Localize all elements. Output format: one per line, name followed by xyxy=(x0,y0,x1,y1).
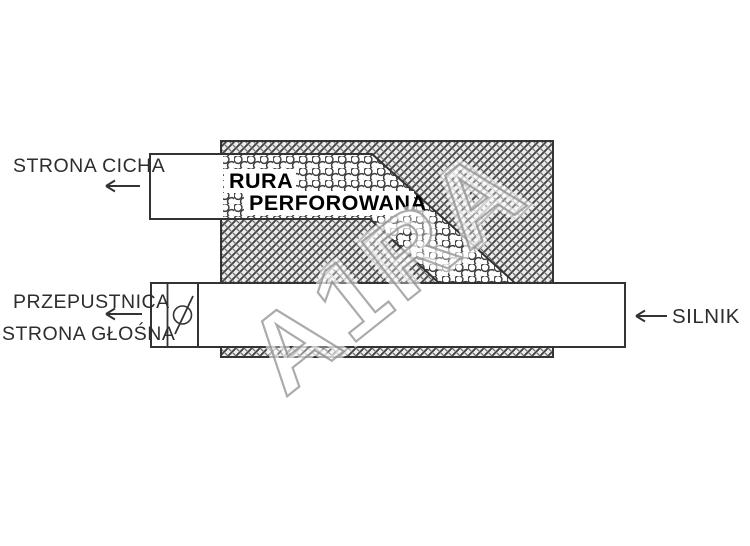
quiet-side-arrow-icon xyxy=(106,181,140,192)
engine-arrow-icon xyxy=(636,311,667,322)
muffler-diagram: STRONA CICHA RURA PERFOROWANA PRZEPUSTNI… xyxy=(0,0,750,546)
loud-side-label: STRONA GŁOŚNA xyxy=(2,321,175,345)
perforated-pipe-label-line1: RURA xyxy=(229,169,293,193)
throttle-label: PRZEPUSTNICA xyxy=(13,291,170,313)
quiet-side-label: STRONA CICHA xyxy=(13,155,165,177)
muffler-diagram-canvas: STRONA CICHA RURA PERFOROWANA PRZEPUSTNI… xyxy=(0,0,750,546)
engine-label: SILNIK xyxy=(672,305,740,328)
